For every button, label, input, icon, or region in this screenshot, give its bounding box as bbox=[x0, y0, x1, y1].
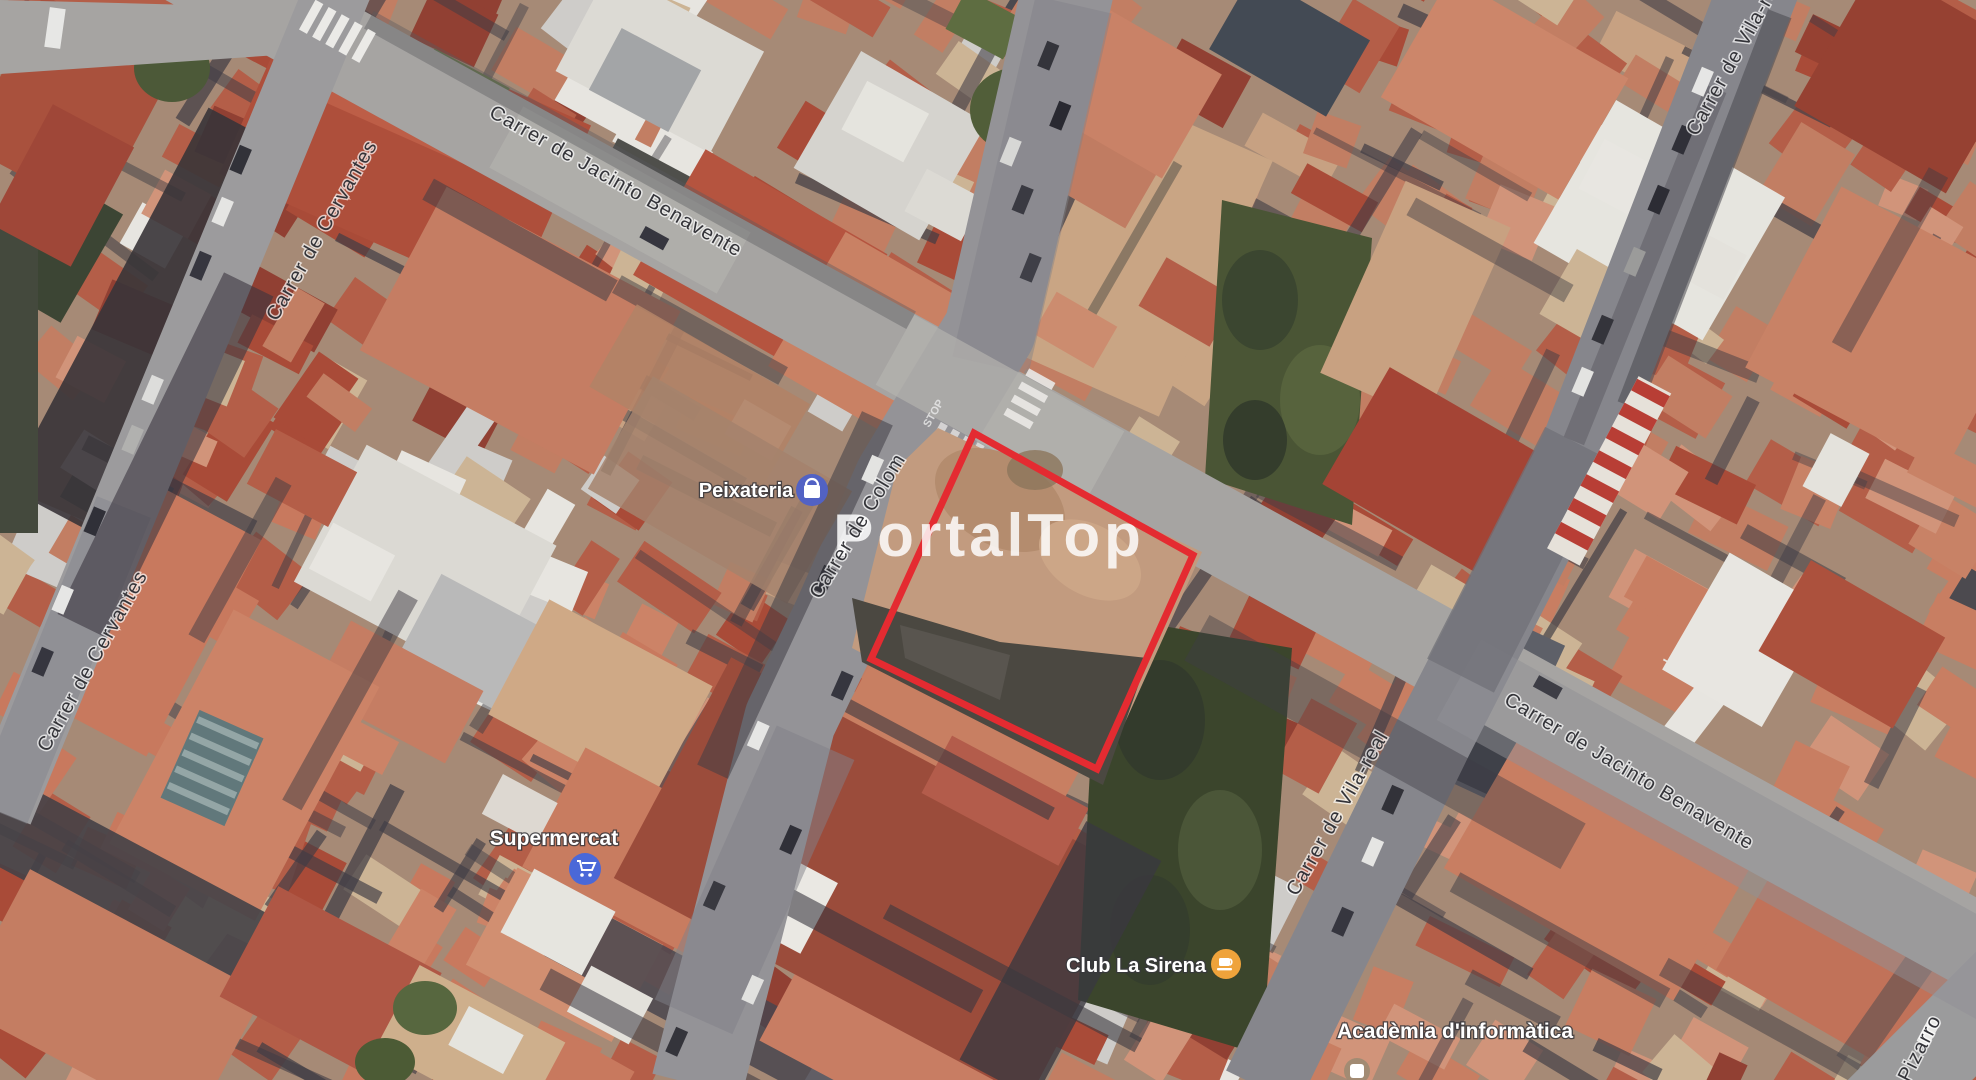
svg-text:PortalTop: PortalTop bbox=[833, 502, 1145, 569]
svg-text:Club La Sirena: Club La Sirena bbox=[1066, 955, 1207, 977]
svg-text:Supermercat: Supermercat bbox=[490, 827, 618, 850]
svg-text:Acadèmia d'informàtica: Acadèmia d'informàtica bbox=[1337, 1020, 1573, 1043]
svg-text:Peixateria: Peixateria bbox=[699, 480, 794, 502]
